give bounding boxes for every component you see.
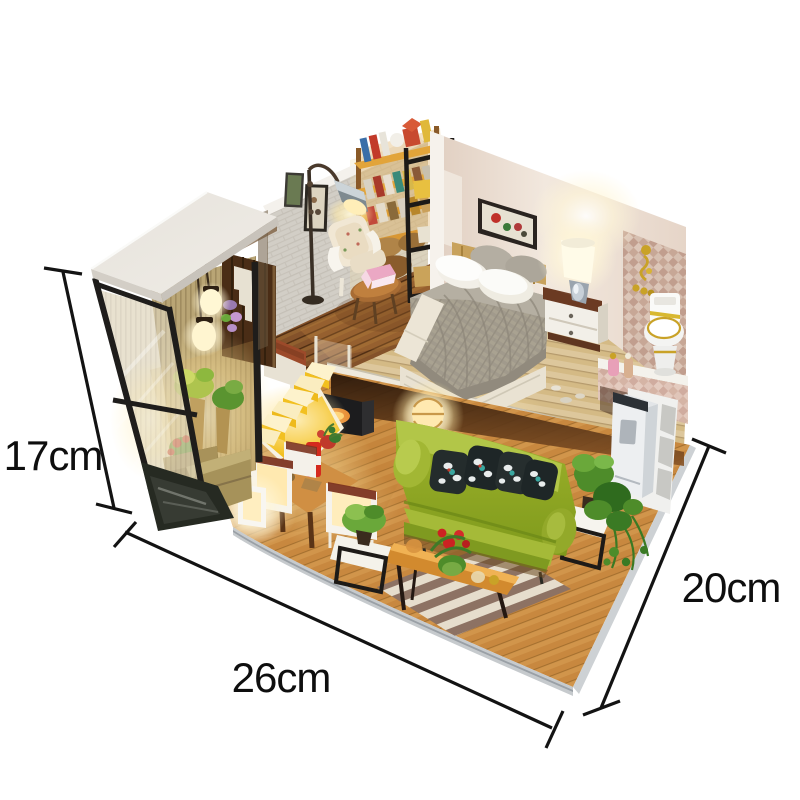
svg-text:20cm: 20cm <box>682 564 781 611</box>
svg-text:26cm: 26cm <box>232 654 331 701</box>
svg-text:17cm: 17cm <box>4 432 103 479</box>
